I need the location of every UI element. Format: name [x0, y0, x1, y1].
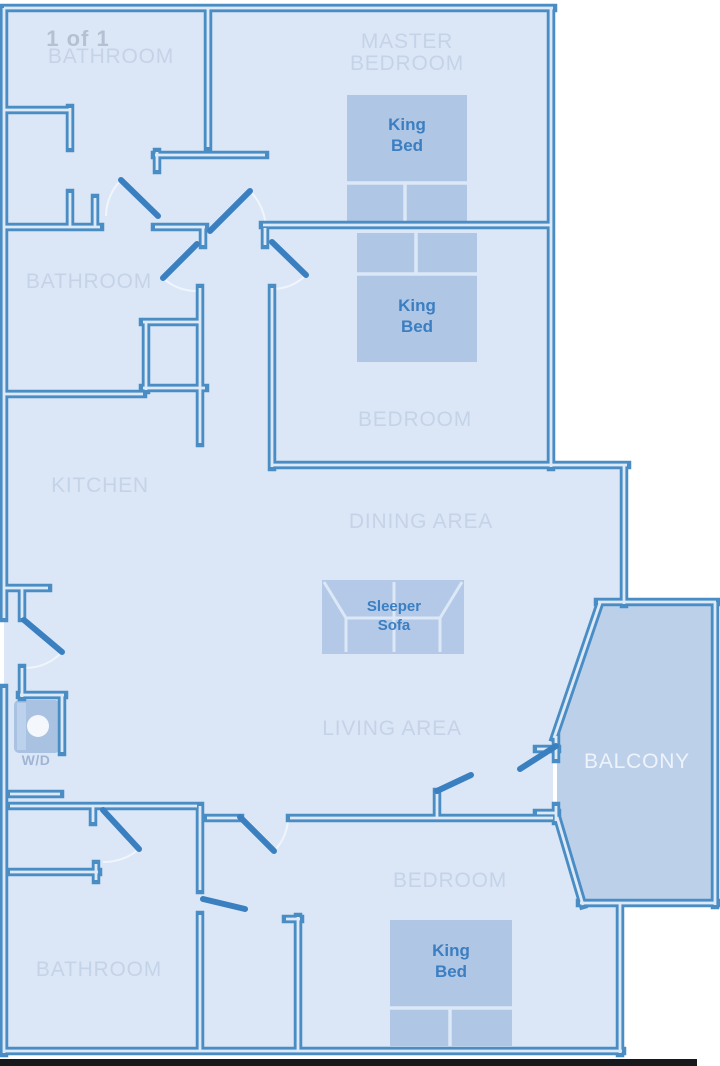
washer-dryer-icon [14, 700, 60, 753]
king-bed-bottom [390, 920, 512, 1046]
king-bed-master [347, 95, 467, 221]
king-bed-middle [357, 233, 477, 362]
unit-floor [4, 8, 626, 1051]
sleeper-sofa [322, 580, 464, 654]
floor-plan-drawing [0, 0, 720, 1066]
floor-plan-page: 1 of 1 BATHROOM MASTERBEDROOM BATHROOM B… [0, 0, 720, 1066]
image-bottom-bar [0, 1059, 697, 1066]
